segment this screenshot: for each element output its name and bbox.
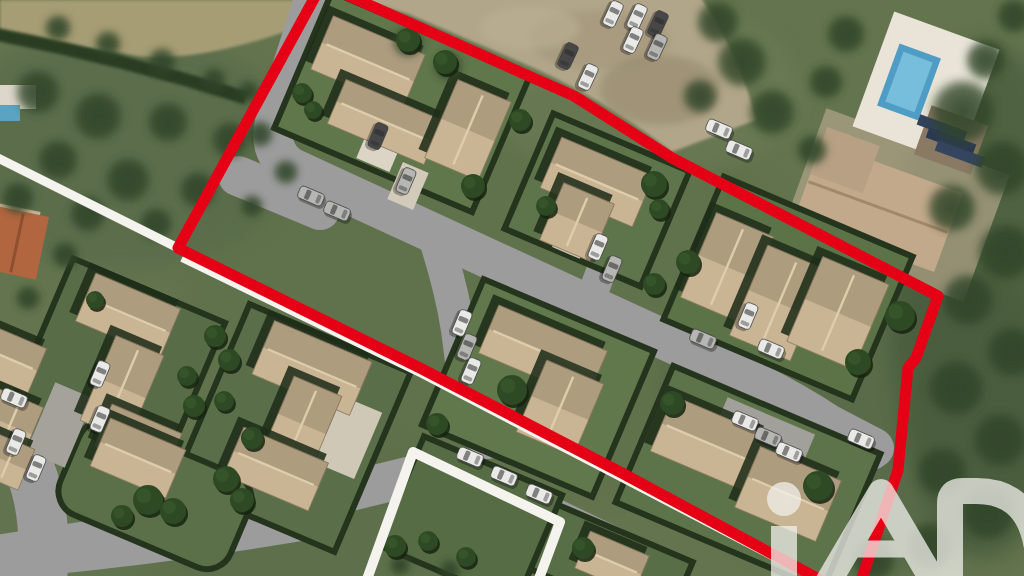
bush-highlight (645, 275, 656, 286)
bush-highlight (848, 352, 861, 365)
tree (71, 89, 125, 143)
satellite-photo (0, 0, 1024, 576)
bush-highlight (216, 469, 229, 482)
bush-highlight (679, 253, 691, 265)
tree (93, 29, 122, 58)
tree (746, 86, 798, 138)
tree (146, 46, 177, 77)
tree (939, 271, 997, 329)
bush-highlight (206, 327, 217, 338)
bush-highlight (216, 393, 226, 403)
bush-highlight (113, 507, 124, 518)
logo-i-dot (767, 482, 801, 516)
bush-highlight (179, 368, 189, 378)
tree (50, 240, 79, 269)
bush-highlight (574, 539, 585, 550)
bush-highlight (888, 304, 903, 319)
bush-highlight (538, 198, 548, 208)
bush-highlight (420, 533, 430, 543)
tree (681, 77, 719, 115)
bush-highlight (220, 351, 231, 362)
bush-highlight (644, 174, 657, 187)
bush-highlight (399, 31, 411, 43)
bush-highlight (136, 488, 151, 503)
bush-highlight (386, 537, 397, 548)
bush-highlight (436, 53, 448, 65)
tree (795, 133, 829, 167)
tree (694, 0, 741, 46)
tree (201, 67, 228, 94)
bush-highlight (243, 429, 254, 440)
tree (146, 100, 191, 145)
bush-highlight (511, 111, 522, 122)
tree (807, 63, 845, 101)
bush-highlight (500, 378, 515, 393)
gravel-patch (480, 6, 580, 50)
bush-highlight (663, 394, 675, 406)
bush-highlight (806, 474, 821, 489)
tree (13, 67, 62, 116)
bush-highlight (233, 491, 245, 503)
tree (273, 159, 300, 186)
bush-highlight (185, 397, 196, 408)
bush-highlight (651, 201, 661, 211)
tree (925, 357, 988, 420)
tree (103, 155, 152, 204)
bush-highlight (306, 103, 315, 112)
tree (925, 181, 979, 235)
bush-highlight (163, 501, 176, 514)
small-pool (0, 105, 20, 121)
tree (0, 180, 36, 216)
tree (15, 285, 42, 312)
bush-highlight (464, 177, 476, 189)
tree (43, 13, 72, 42)
bush-highlight (294, 85, 304, 95)
tree (927, 76, 999, 148)
bush-highlight (88, 293, 97, 302)
tree (240, 194, 265, 219)
bush-highlight (428, 415, 439, 426)
tree (964, 38, 1009, 83)
bush-highlight (458, 549, 468, 559)
road (30, 470, 44, 576)
tree (825, 13, 868, 56)
aerial-site-plan: iad (0, 0, 1024, 576)
